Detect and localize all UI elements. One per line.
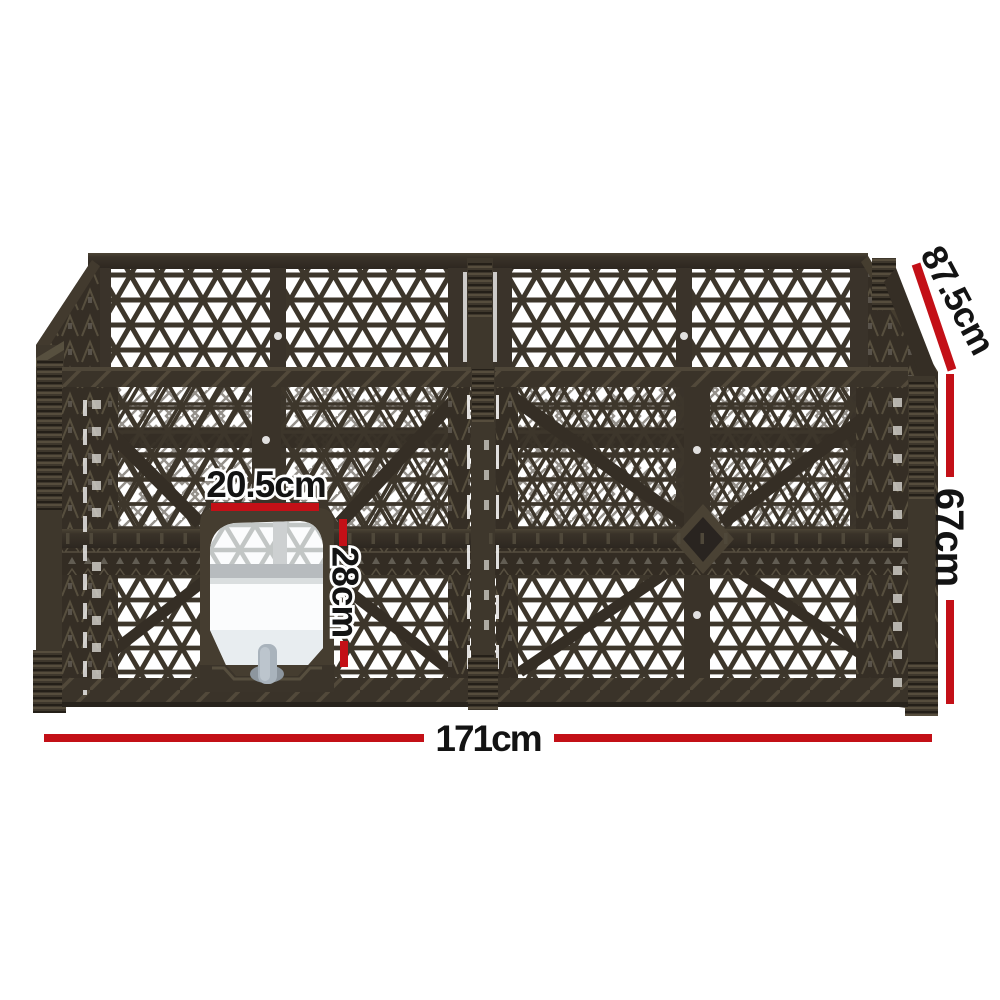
svg-text:28cm: 28cm — [325, 547, 366, 638]
svg-text:20.5cm: 20.5cm — [206, 464, 326, 505]
svg-text:171cm: 171cm — [435, 718, 540, 759]
svg-text:67cm: 67cm — [927, 488, 971, 586]
